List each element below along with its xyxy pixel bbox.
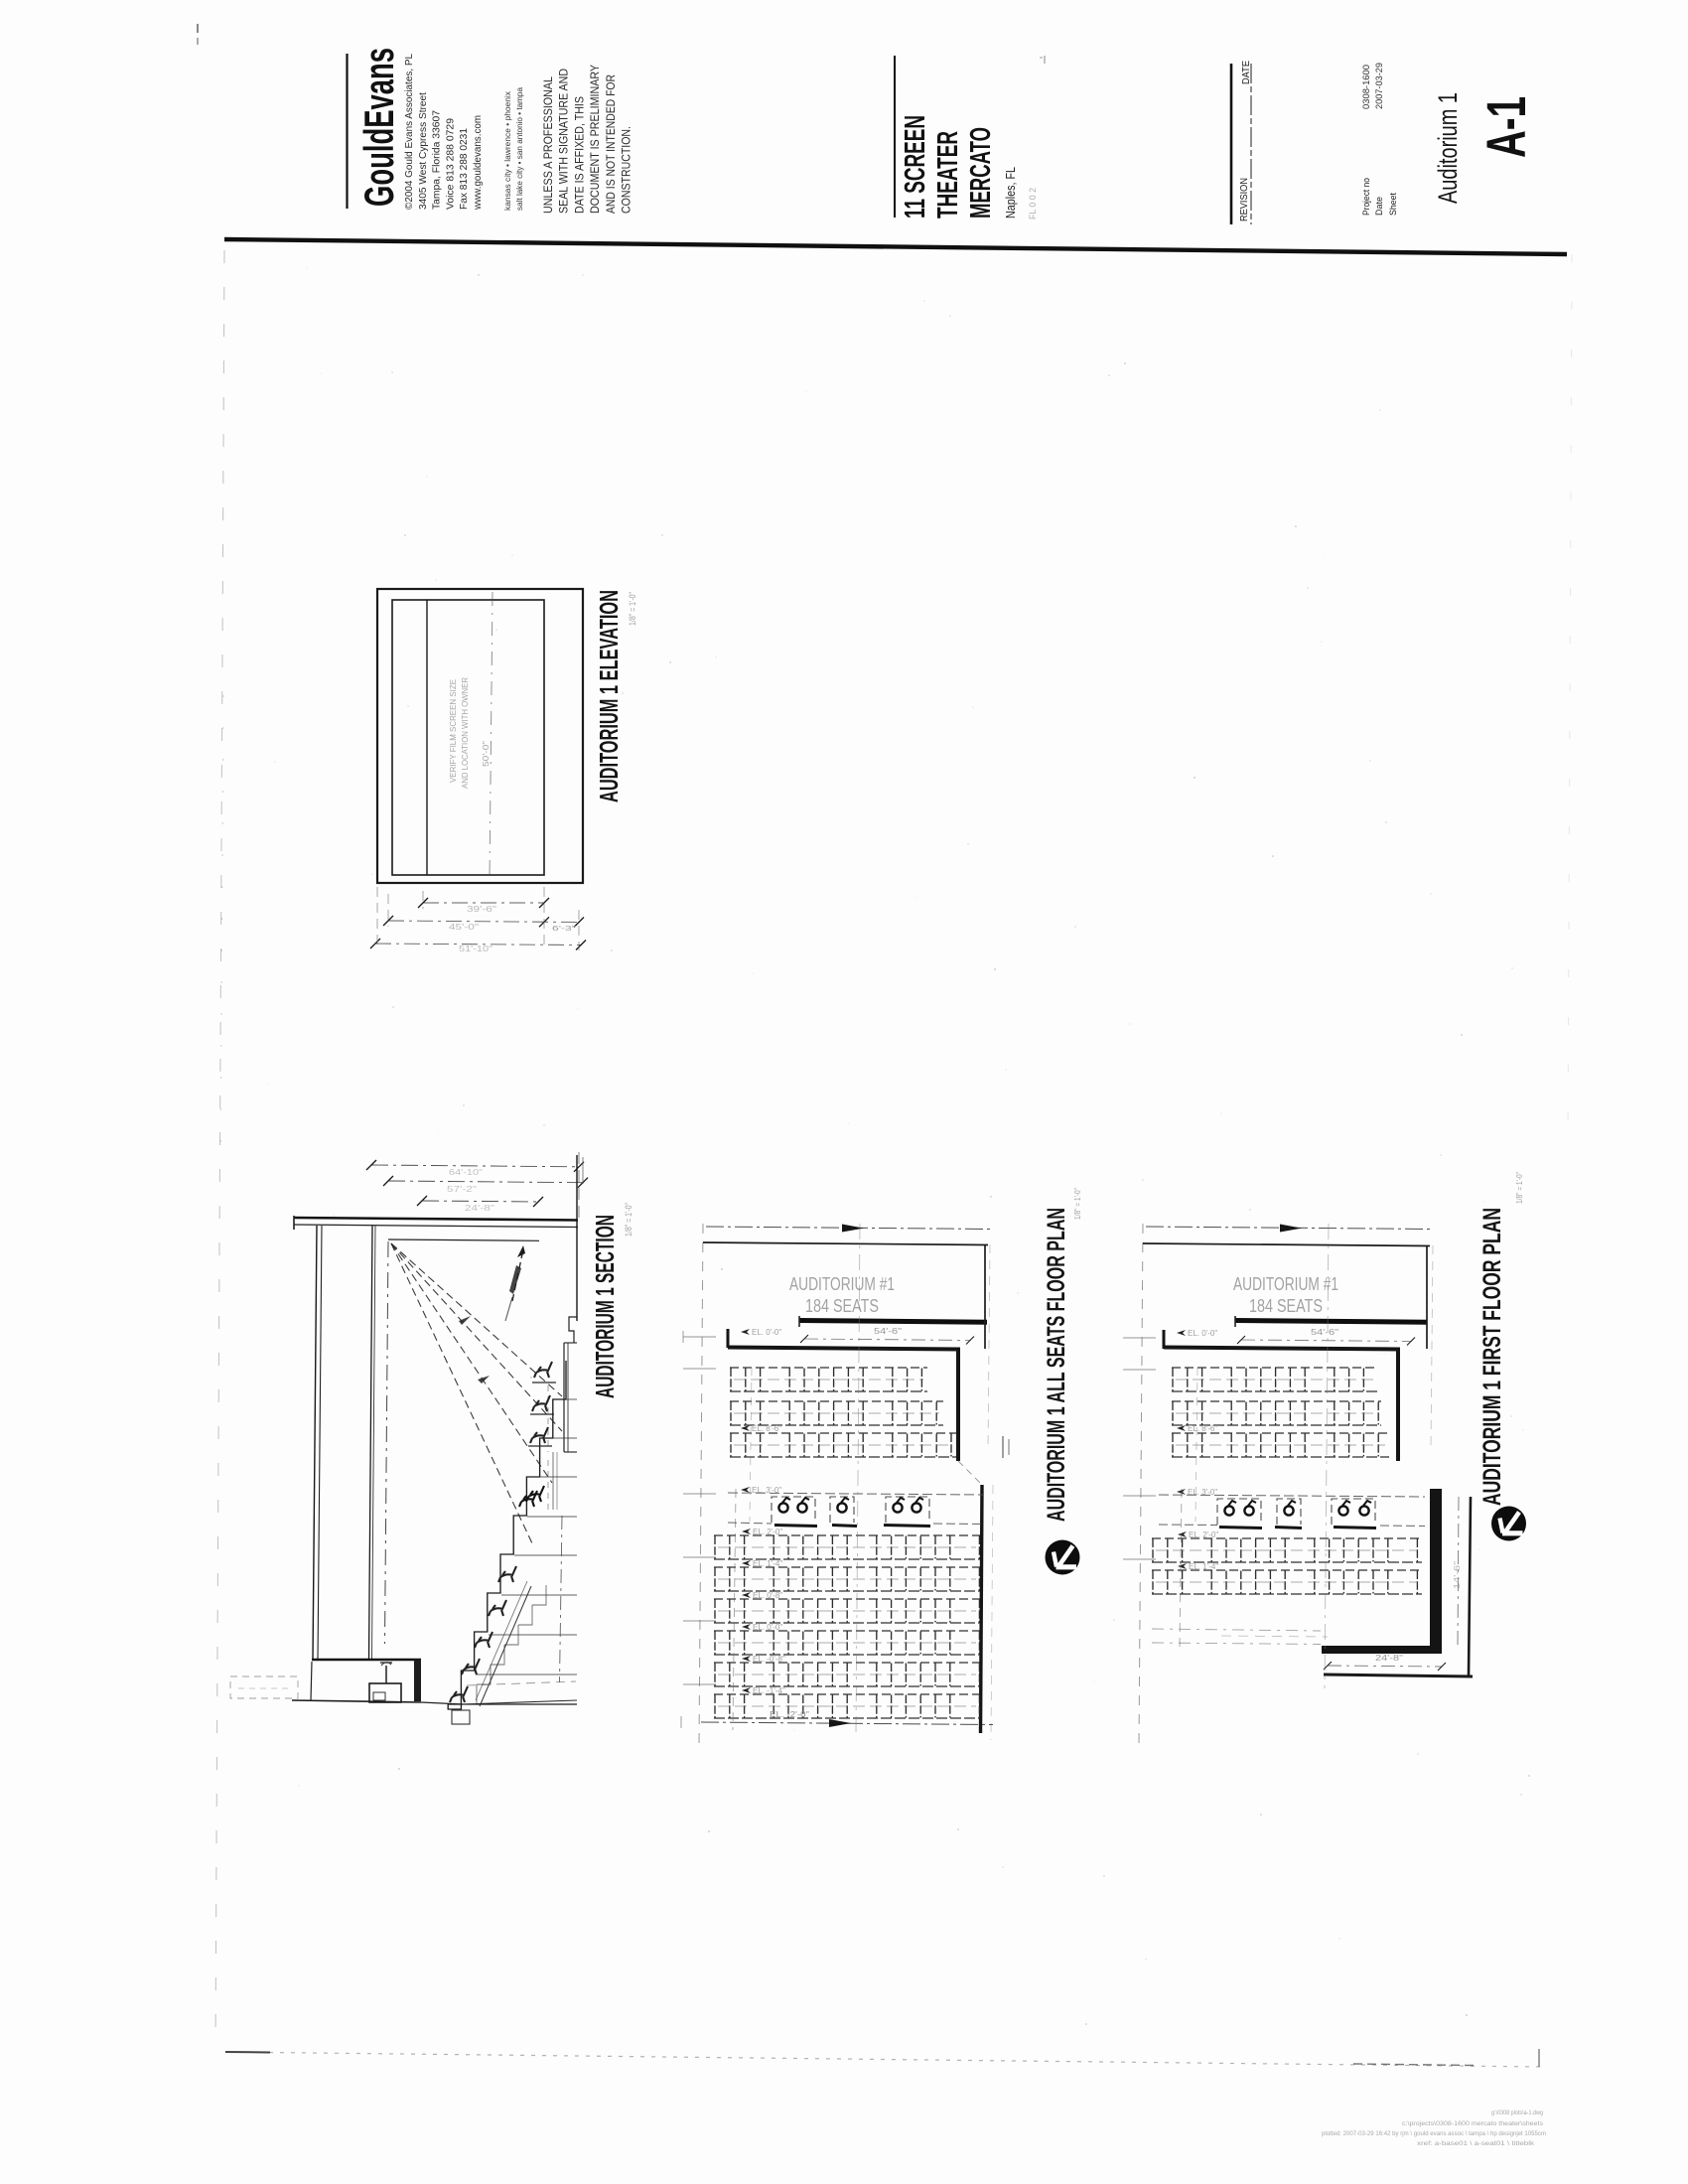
svg-text:45'-0": 45'-0" bbox=[449, 922, 479, 932]
svg-text:1/8" = 1'-0": 1/8" = 1'-0" bbox=[1072, 1188, 1082, 1220]
svg-text:MERCATO: MERCATO bbox=[965, 127, 997, 218]
svg-text:AUDITORIUM #1: AUDITORIUM #1 bbox=[1233, 1274, 1338, 1294]
svg-text:1/8" = 1'-0": 1/8" = 1'-0" bbox=[1514, 1172, 1524, 1204]
svg-text:SEAL WITH SIGNATURE AND: SEAL WITH SIGNATURE AND bbox=[559, 69, 571, 214]
svg-text:2007-03-29: 2007-03-29 bbox=[1374, 63, 1385, 109]
svg-text:www.gouldevans.com: www.gouldevans.com bbox=[473, 115, 484, 211]
svg-text:c:\projects\0308-1600 mercato: c:\projects\0308-1600 mercato theater\sh… bbox=[1402, 2120, 1544, 2127]
svg-text:6'-3": 6'-3" bbox=[552, 924, 577, 933]
svg-text:AND IS NOT INTENDED FOR: AND IS NOT INTENDED FOR bbox=[606, 74, 618, 214]
svg-text:THEATER: THEATER bbox=[932, 131, 964, 218]
svg-text:FL 0 0 2: FL 0 0 2 bbox=[1028, 188, 1038, 219]
svg-text:57'-2": 57'-2" bbox=[447, 1184, 477, 1194]
svg-text:EL. 8'-6": EL. 8'-6" bbox=[1188, 1424, 1217, 1433]
svg-text:AND LOCATION WITH OWNER: AND LOCATION WITH OWNER bbox=[460, 677, 470, 789]
svg-text:©2004 Gould Evans Associates,: ©2004 Gould Evans Associates, PL bbox=[404, 54, 415, 210]
svg-text:CONSTRUCTION.: CONSTRUCTION. bbox=[622, 126, 633, 214]
svg-text:AUDITORIUM 1 ALL SEATS FLOOR P: AUDITORIUM 1 ALL SEATS FLOOR PLAN bbox=[1043, 1208, 1070, 1522]
svg-text:kansas city • lawrence • phoen: kansas city • lawrence • phoenix bbox=[502, 90, 512, 211]
svg-text:g:\0308 plots\a-1.dwg: g:\0308 plots\a-1.dwg bbox=[1491, 2110, 1543, 2116]
svg-text:REVISION: REVISION bbox=[1239, 178, 1250, 221]
svg-text:64'-10": 64'-10" bbox=[449, 1167, 483, 1177]
svg-text:EL. 0'-0": EL. 0'-0" bbox=[752, 1328, 781, 1337]
svg-text:AUDITORIUM 1 SECTION: AUDITORIUM 1 SECTION bbox=[590, 1215, 620, 1398]
svg-text:AUDITORIUM 1 FIRST FLOOR PLAN: AUDITORIUM 1 FIRST FLOOR PLAN bbox=[1478, 1208, 1506, 1506]
svg-text:Naples, FL: Naples, FL bbox=[1003, 167, 1018, 218]
svg-text:DATE: DATE bbox=[1241, 61, 1252, 84]
svg-text:Voice 813 288 0729: Voice 813 288 0729 bbox=[445, 118, 456, 210]
svg-text:AUDITORIUM #1: AUDITORIUM #1 bbox=[789, 1274, 895, 1294]
svg-text:Sheet: Sheet bbox=[1388, 193, 1399, 216]
svg-text:EL. -2'-0": EL. -2'-0" bbox=[770, 1710, 809, 1719]
svg-text:11 SCREEN: 11 SCREEN bbox=[900, 115, 931, 218]
svg-text:24'-8": 24'-8" bbox=[465, 1203, 494, 1213]
svg-text:xref: a-base01 \ a-seat01 \ ti: xref: a-base01 \ a-seat01 \ titleblk bbox=[1417, 2140, 1535, 2147]
svg-text:0308-1600: 0308-1600 bbox=[1361, 65, 1372, 109]
svg-text:plotted: 2007-03-29 16:42 by r: plotted: 2007-03-29 16:42 by rjm \ gould… bbox=[1322, 2130, 1546, 2137]
svg-text:3405 West Cypress Street: 3405 West Cypress Street bbox=[418, 92, 429, 210]
svg-text:Fax 813 288 0231: Fax 813 288 0231 bbox=[459, 128, 470, 210]
svg-text:DATE IS AFFIXED, THIS: DATE IS AFFIXED, THIS bbox=[574, 96, 586, 214]
svg-text:184 SEATS: 184 SEATS bbox=[1249, 1296, 1323, 1316]
svg-text:1/8" = 1'-0": 1/8" = 1'-0" bbox=[628, 592, 637, 626]
svg-text:54'-6": 54'-6" bbox=[1311, 1328, 1338, 1337]
svg-text:salt lake city • san antonio •: salt lake city • san antonio • tampa bbox=[514, 87, 524, 211]
svg-text:184 SEATS: 184 SEATS bbox=[805, 1296, 879, 1316]
svg-text:A-1: A-1 bbox=[1475, 96, 1537, 158]
svg-text:1/8" = 1'-0": 1/8" = 1'-0" bbox=[624, 1203, 633, 1237]
svg-text:DOCUMENT IS PRELIMINARY: DOCUMENT IS PRELIMINARY bbox=[590, 65, 602, 214]
svg-text:EL. 0'-0": EL. 0'-0" bbox=[1188, 1329, 1217, 1338]
svg-text:51'-10": 51'-10" bbox=[459, 944, 492, 953]
svg-text:14'-6": 14'-6" bbox=[1453, 1561, 1462, 1589]
svg-text:Project no: Project no bbox=[1361, 178, 1372, 216]
svg-text:GouldEvans: GouldEvans bbox=[355, 48, 402, 207]
svg-text:24'-8": 24'-8" bbox=[1375, 1654, 1403, 1663]
svg-text:Tampa, Florida 33607: Tampa, Florida 33607 bbox=[432, 110, 443, 210]
svg-text:Auditorium 1: Auditorium 1 bbox=[1433, 92, 1463, 204]
svg-text:UNLESS A PROFESSIONAL: UNLESS A PROFESSIONAL bbox=[543, 75, 555, 214]
svg-text:AUDITORIUM 1 ELEVATION: AUDITORIUM 1 ELEVATION bbox=[594, 590, 624, 802]
svg-text:VERIFY FILM SCREEN SIZE: VERIFY FILM SCREEN SIZE bbox=[448, 679, 458, 783]
svg-text:Date: Date bbox=[1374, 197, 1385, 216]
svg-text:54'-6": 54'-6" bbox=[874, 1327, 902, 1336]
svg-text:50'-0": 50'-0" bbox=[482, 741, 491, 767]
svg-text:EL. 8'-6": EL. 8'-6" bbox=[752, 1424, 781, 1433]
svg-text:39'-6": 39'-6" bbox=[467, 904, 496, 914]
